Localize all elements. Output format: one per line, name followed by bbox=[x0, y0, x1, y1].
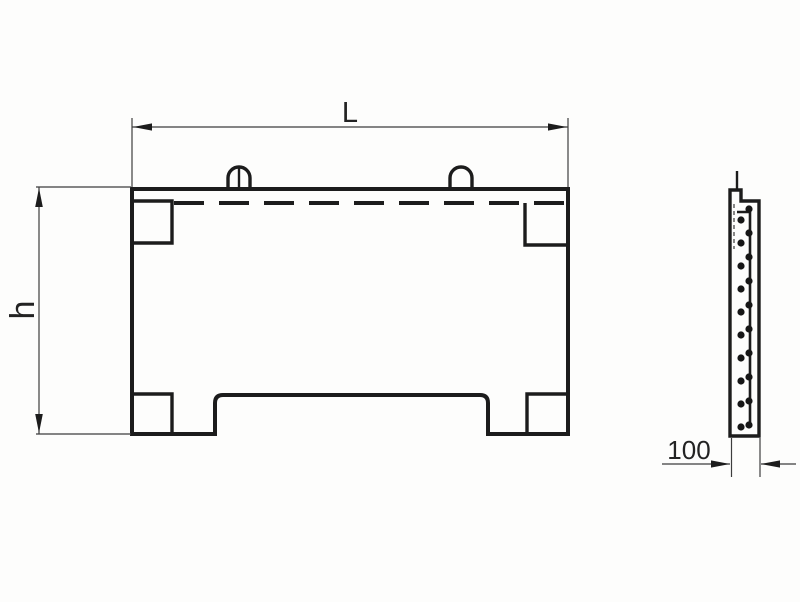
rebar-dot bbox=[745, 253, 752, 260]
front-view bbox=[132, 167, 568, 434]
rebar-dot bbox=[745, 421, 752, 428]
rebar-dot bbox=[737, 354, 744, 361]
technical-drawing-canvas: L h 100 bbox=[0, 0, 800, 602]
arrowhead-left bbox=[711, 460, 730, 467]
rebar-dot bbox=[737, 331, 744, 338]
dimension-length: L bbox=[132, 97, 568, 187]
panel-outline bbox=[132, 189, 568, 434]
rebar-dot bbox=[737, 308, 744, 315]
dimension-height-label: h bbox=[4, 301, 42, 320]
lifting-loop-right bbox=[450, 167, 472, 190]
dimension-width-label: 100 bbox=[667, 435, 710, 465]
arrowhead-bottom bbox=[35, 414, 43, 433]
arrowhead-top bbox=[35, 188, 43, 207]
rebar-dot bbox=[737, 262, 744, 269]
rebar-dot bbox=[737, 400, 744, 407]
arrowhead-right bbox=[548, 123, 567, 130]
rebar-dot bbox=[745, 325, 752, 332]
rebar-dot bbox=[745, 349, 752, 356]
rebar-dot bbox=[737, 377, 744, 384]
rebar-dot bbox=[745, 205, 752, 212]
dimension-height: h bbox=[4, 187, 131, 434]
rebar-dot bbox=[745, 277, 752, 284]
rebar-dot bbox=[745, 229, 752, 236]
rebar-dot bbox=[737, 216, 744, 223]
rebar-dot bbox=[745, 373, 752, 380]
dimension-width: 100 bbox=[662, 435, 796, 477]
arrowhead-right bbox=[761, 460, 780, 467]
arrowhead-left bbox=[133, 123, 152, 130]
rebar-dot bbox=[737, 239, 744, 246]
drawing-svg: L h 100 bbox=[0, 0, 800, 602]
rebar-dot bbox=[745, 397, 752, 404]
rebar-dot bbox=[737, 285, 744, 292]
side-view bbox=[730, 171, 759, 436]
dimension-length-label: L bbox=[342, 97, 358, 129]
rebar-dot bbox=[737, 423, 744, 430]
rebar-dot bbox=[745, 301, 752, 308]
